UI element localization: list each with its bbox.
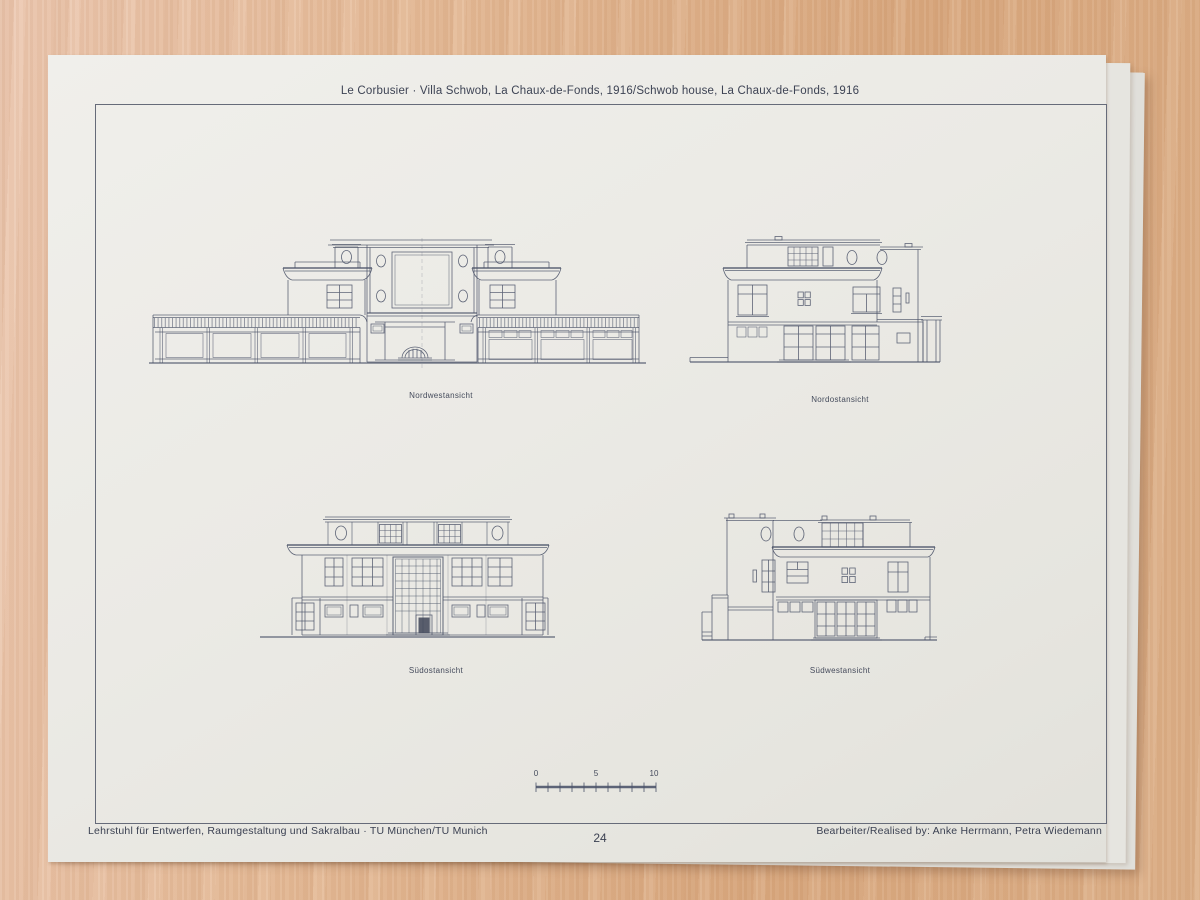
elevation-drawing-nordwest bbox=[145, 228, 650, 380]
sheet-title: Le Corbusier · Villa Schwob, La Chaux-de… bbox=[95, 85, 1105, 97]
figure-caption-suedost: Südostansicht bbox=[326, 666, 546, 675]
scale-label-5: 5 bbox=[594, 769, 599, 778]
scale-label-0: 0 bbox=[534, 769, 539, 778]
elevation-drawing-suedwest bbox=[700, 500, 945, 662]
figure-caption-nordost: Nordostansicht bbox=[720, 395, 960, 404]
scale-bar: 0 5 10 bbox=[533, 766, 663, 798]
footer-credits: Bearbeiter/Realised by: Anke Herrmann, P… bbox=[700, 825, 1102, 837]
footer-institution: Lehrstuhl für Entwerfen, Raumgestaltung … bbox=[88, 825, 488, 837]
figure-caption-nordwest: Nordwestansicht bbox=[331, 391, 551, 400]
elevation-drawing-nordost bbox=[683, 228, 945, 380]
scale-label-10: 10 bbox=[650, 769, 659, 778]
page-number: 24 bbox=[560, 831, 640, 845]
border-frame bbox=[95, 104, 1107, 824]
desk-photo: Le Corbusier · Villa Schwob, La Chaux-de… bbox=[0, 0, 1200, 900]
elevation-drawing-suedost bbox=[250, 498, 580, 656]
figure-caption-suedwest: Südwestansicht bbox=[730, 666, 950, 675]
